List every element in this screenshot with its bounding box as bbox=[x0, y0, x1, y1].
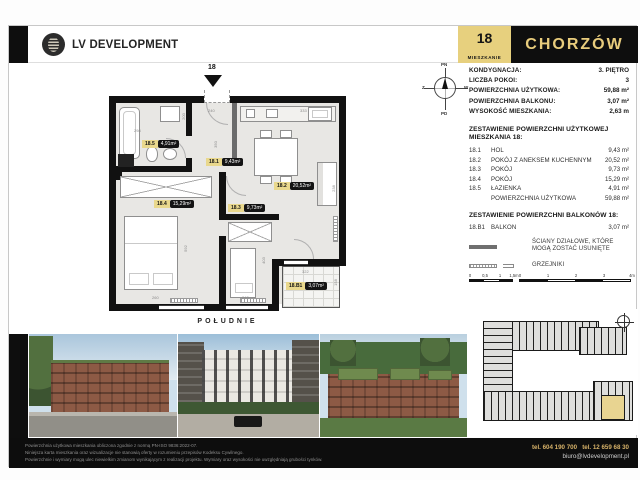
dining-table bbox=[254, 138, 298, 176]
unit-label: MIESZKANIE bbox=[458, 55, 511, 60]
radiator bbox=[333, 216, 338, 242]
room-label-bathroom: 18.54,91m² bbox=[142, 140, 179, 148]
summary-row: LICZBA POKOI:3 bbox=[469, 77, 629, 84]
unit-number: 18 bbox=[458, 30, 511, 46]
area-row: 18.1HOL9,43 m² bbox=[469, 147, 629, 154]
wardrobe bbox=[228, 222, 272, 242]
scale-ruler-large: 0 1 2 3 4m bbox=[519, 279, 631, 282]
entry-door-gap bbox=[204, 90, 230, 103]
area-total-row: POWIERZCHNIA UŻYTKOWA59,88 m² bbox=[469, 195, 629, 202]
chair bbox=[280, 130, 292, 138]
balcony-row: 18.B1BALKON3,07 m² bbox=[469, 224, 629, 231]
bed-large bbox=[124, 216, 178, 290]
summary-row: POWIERZCHNIA UŻYTKOWA:59,88 m² bbox=[469, 87, 629, 94]
room-label-living: 18.220,52m² bbox=[274, 182, 314, 190]
heater-legend-label: GRZEJNIKI bbox=[532, 262, 564, 268]
heater-legend-icon-2 bbox=[503, 264, 514, 268]
site-plan-compass-icon bbox=[617, 315, 630, 328]
chair bbox=[260, 130, 272, 138]
city-banner: CHORZÓW bbox=[511, 26, 638, 63]
area-row: 18.4POKÓJ15,29 m² bbox=[469, 176, 629, 183]
compass-north-needle-icon bbox=[442, 78, 448, 89]
balcony-areas-title: ZESTAWIENIE POWIERZCHNI BALKONÓW 18: bbox=[469, 212, 629, 221]
radiator bbox=[170, 298, 198, 303]
area-row: 18.5ŁAZIENKA4,91 m² bbox=[469, 185, 629, 192]
compass-rose: PN PD Z W bbox=[422, 62, 470, 116]
washer bbox=[118, 154, 134, 167]
usable-areas-title: ZESTAWIENIE POWIERZCHNI UŻYTKOWEJ MIESZK… bbox=[469, 126, 629, 143]
lv-development-logo-icon bbox=[42, 33, 65, 56]
scale-ruler-small: 0 0,5 1 1,5m bbox=[469, 279, 513, 282]
fridge bbox=[308, 107, 332, 121]
toilet bbox=[146, 146, 158, 162]
stove-icon bbox=[266, 109, 278, 118]
header-left-black-strip bbox=[9, 26, 28, 63]
compass-south-label: PD bbox=[441, 111, 447, 116]
photo-courtyard-view bbox=[178, 334, 319, 437]
bathtub bbox=[119, 107, 140, 159]
room-label-bedroom-2: 18.39,73m² bbox=[228, 204, 265, 212]
floor-plan: 18 bbox=[104, 66, 354, 328]
city-name: CHORZÓW bbox=[525, 36, 623, 54]
phone-2: tel. 12 659 68 30 bbox=[582, 444, 629, 451]
removable-wall-legend-icon bbox=[469, 245, 497, 249]
compass-west-label: Z bbox=[422, 85, 425, 90]
header-bar: LV DEVELOPMENT bbox=[28, 26, 458, 63]
sink bbox=[163, 148, 177, 160]
compass-east-label: W bbox=[464, 85, 468, 90]
entry-arrow-icon bbox=[204, 75, 222, 87]
chair bbox=[260, 176, 272, 184]
balcony-door bbox=[284, 260, 308, 265]
unit-number-badge: 18 MIESZKANIE bbox=[458, 26, 511, 63]
room-label-hall: 18.19,43m² bbox=[206, 158, 243, 166]
compass-north-label: PN bbox=[441, 62, 447, 67]
contact-phones: tel. 604 190 700 tel. 12 659 68 30 bbox=[532, 444, 629, 451]
summary-row: POWIERZCHNIA BALKONU:3,07 m² bbox=[469, 98, 629, 105]
footer-bar: Powierzchnia użytkowa mieszkania obliczo… bbox=[9, 438, 638, 468]
building-site-plan bbox=[469, 309, 638, 435]
flyer-card: LV DEVELOPMENT 18 MIESZKANIE CHORZÓW PN … bbox=[8, 25, 637, 467]
apartment-info-panel: KONDYGNACJA:3. PIĘTRO LICZBA POKOI:3 POW… bbox=[469, 67, 629, 234]
south-label: POŁUDNIE bbox=[104, 318, 351, 325]
phone-1: tel. 604 190 700 bbox=[532, 444, 577, 451]
room-label-bedroom-1: 18.415,29m² bbox=[154, 200, 194, 208]
photo-aerial-view bbox=[320, 334, 467, 437]
removable-partition-wall bbox=[232, 103, 237, 164]
summary-row: KONDYGNACJA:3. PIĘTRO bbox=[469, 67, 629, 74]
kitchen-sink-icon bbox=[246, 109, 255, 118]
entry-unit-number: 18 bbox=[208, 64, 216, 71]
car bbox=[234, 416, 262, 427]
photo-street-view bbox=[29, 334, 177, 437]
disclaimer-text: Powierzchnia użytkowa mieszkania obliczo… bbox=[25, 442, 395, 464]
contact-email: biuro@lvdevelopment.pl bbox=[563, 453, 629, 460]
room-label-balcony: 18.B13,07m² bbox=[286, 282, 327, 290]
brand-name: LV DEVELOPMENT bbox=[72, 37, 178, 51]
heater-legend-icon bbox=[469, 264, 497, 268]
summary-row: WYSOKOŚĆ MIESZKANIA:2,63 m bbox=[469, 108, 629, 115]
removable-wall-legend-label: ŚCIANY DZIAŁOWE, KTÓRE MOGĄ ZOSTAĆ USUNI… bbox=[532, 239, 637, 253]
area-row: 18.2POKÓJ Z ANEKSEM KUCHENNYM20,52 m² bbox=[469, 157, 629, 164]
area-row: 18.3POKÓJ9,73 m² bbox=[469, 166, 629, 173]
wardrobe bbox=[120, 176, 212, 198]
highlighted-unit-18 bbox=[601, 395, 625, 420]
window bbox=[159, 305, 204, 310]
window bbox=[226, 305, 268, 310]
flyer-page: LV DEVELOPMENT 18 MIESZKANIE CHORZÓW PN … bbox=[0, 0, 640, 480]
bed-single bbox=[230, 248, 256, 298]
washbasin-cabinet bbox=[160, 106, 180, 122]
